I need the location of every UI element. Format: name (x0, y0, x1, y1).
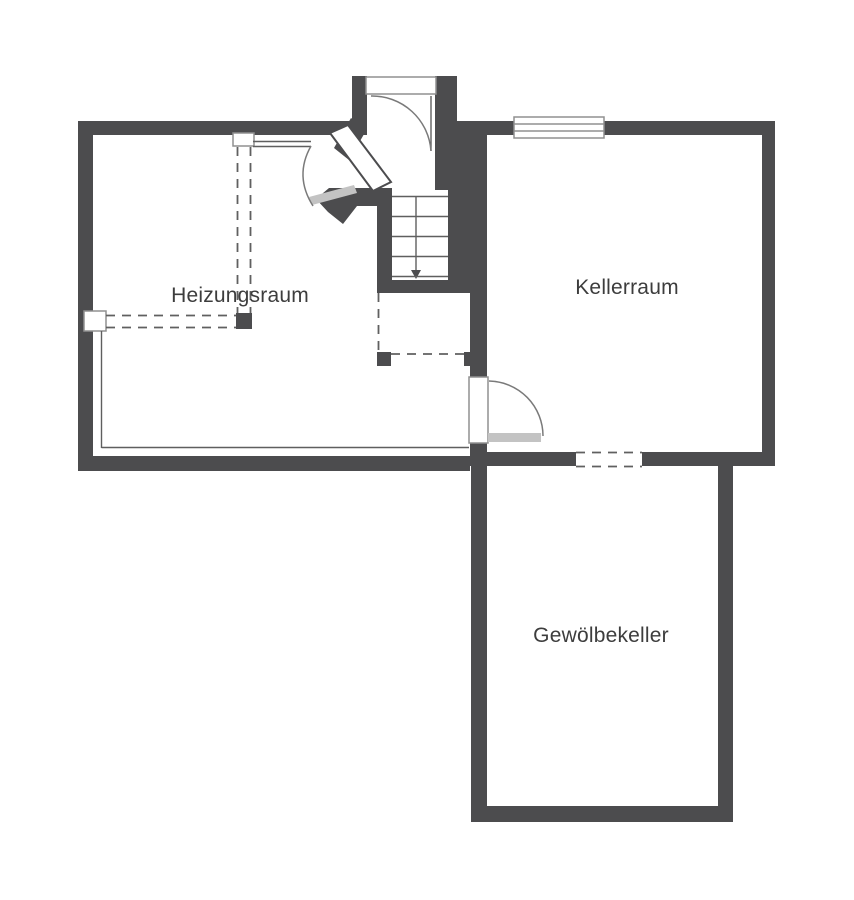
divider-wall-below-door (470, 443, 487, 456)
vestibule-right-wall (435, 76, 457, 135)
kellerraum-door-opening (469, 377, 488, 443)
door-leaves (309, 185, 541, 442)
gewoelbekeller-bottom-wall (471, 806, 733, 822)
room-label-gewoelbekeller: Gewölbekeller (533, 624, 669, 648)
top-wall-left-segment (78, 121, 352, 135)
stair-bottom-wall (377, 280, 487, 293)
bottom-wall-left (78, 456, 470, 471)
gewoelbekeller-left-wall (471, 456, 487, 822)
gewoelbekeller-right-wall (718, 466, 733, 822)
stair-right-wall (448, 190, 487, 293)
walls (78, 76, 775, 822)
room-label-kellerraum: Kellerraum (575, 276, 679, 300)
stair-direction-arrowhead (411, 270, 421, 279)
top-wall-right-segment (603, 121, 775, 135)
void-corner-post-right (464, 352, 478, 366)
stair-treads (392, 197, 448, 277)
kellerraum-door-leaf (488, 433, 541, 442)
left-outer-wall (78, 121, 93, 471)
dashed-band-top-box (233, 133, 254, 146)
entrance-door-swing-arc (371, 96, 431, 151)
floor-plan-drawing (0, 0, 854, 900)
void-corner-post-left (377, 352, 391, 366)
thin-partition-double-line (253, 142, 311, 147)
room-label-heizungsraum: Heizungsraum (171, 284, 309, 308)
floor-plan-canvas: Heizungsraum Kellerraum Gewölbekeller (0, 0, 854, 900)
entrance-door-opening (366, 77, 436, 94)
kellerraum-right-wall (762, 121, 775, 466)
dashed-wall-junction-post (236, 313, 252, 329)
kellerraum-door-swing-arc (489, 381, 543, 436)
left-wall-niche (84, 311, 106, 331)
kellerraum-window (514, 117, 604, 138)
top-wall-mid-segment (457, 121, 515, 135)
dashed-wall-posts (236, 313, 478, 366)
hall-divider-wall-upper (435, 135, 487, 190)
